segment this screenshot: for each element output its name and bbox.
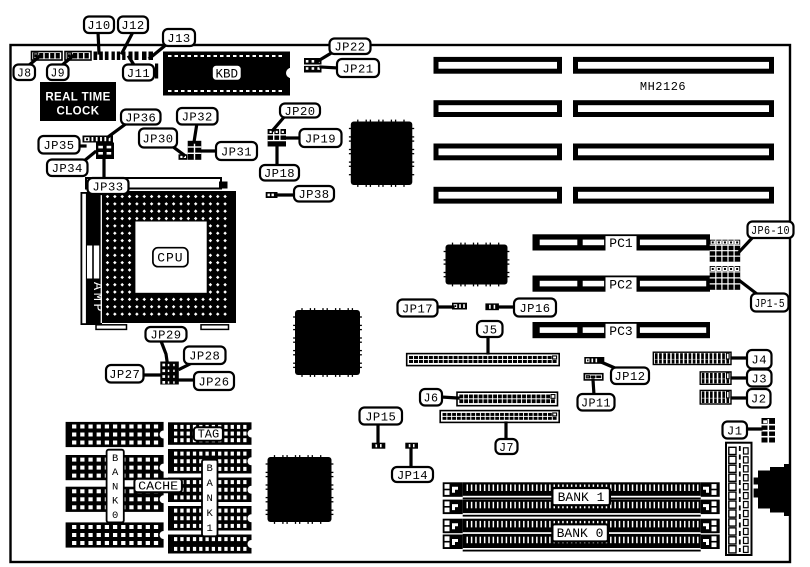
svg-text:0: 0 <box>112 510 118 522</box>
svg-text:CACHE: CACHE <box>138 479 178 493</box>
svg-text:J6: J6 <box>424 392 439 406</box>
svg-text:JP16: JP16 <box>519 302 550 316</box>
svg-text:JP12: JP12 <box>614 370 645 384</box>
svg-text:1: 1 <box>207 523 213 535</box>
svg-text:N: N <box>112 481 118 493</box>
svg-text:PC2: PC2 <box>609 277 632 292</box>
svg-text:BANK 0: BANK 0 <box>557 526 604 541</box>
svg-text:J8: J8 <box>17 67 32 81</box>
svg-text:JP22: JP22 <box>334 41 365 55</box>
svg-text:J3: J3 <box>751 372 767 386</box>
svg-text:J1: J1 <box>727 424 743 438</box>
svg-text:JP27: JP27 <box>109 368 140 382</box>
svg-text:JP20: JP20 <box>284 105 315 119</box>
svg-text:BANK 1: BANK 1 <box>558 490 605 505</box>
svg-text:MH2126: MH2126 <box>640 80 686 94</box>
svg-text:K: K <box>112 496 119 508</box>
svg-text:J11: J11 <box>127 67 150 81</box>
svg-text:JP6-10: JP6-10 <box>751 224 790 238</box>
svg-text:JP38: JP38 <box>298 188 329 202</box>
svg-text:REAL TIME: REAL TIME <box>45 92 110 104</box>
svg-text:J7: J7 <box>499 441 514 455</box>
svg-text:JP36: JP36 <box>125 111 156 125</box>
svg-text:N: N <box>207 493 213 505</box>
svg-text:B: B <box>112 453 118 465</box>
svg-text:JP33: JP33 <box>92 180 123 194</box>
svg-text:J2: J2 <box>751 393 767 407</box>
svg-text:JP1-5: JP1-5 <box>755 297 786 311</box>
svg-text:JP17: JP17 <box>402 302 433 316</box>
svg-text:JP34: JP34 <box>52 162 83 176</box>
svg-text:JP35: JP35 <box>43 139 74 153</box>
svg-text:JP32: JP32 <box>182 111 213 125</box>
svg-text:J5: J5 <box>482 323 498 337</box>
svg-text:A: A <box>112 467 119 479</box>
svg-text:JP11: JP11 <box>581 397 611 411</box>
svg-text:JP21: JP21 <box>342 62 373 76</box>
svg-text:J12: J12 <box>121 19 144 33</box>
svg-text:PC1: PC1 <box>609 236 633 251</box>
svg-text:CPU: CPU <box>157 251 183 266</box>
svg-text:TAG: TAG <box>198 428 220 442</box>
svg-text:PC3: PC3 <box>609 324 632 339</box>
svg-text:JP14: JP14 <box>397 469 428 483</box>
svg-text:JP19: JP19 <box>305 132 336 146</box>
svg-text:B: B <box>207 463 213 475</box>
svg-text:J9: J9 <box>51 67 66 81</box>
svg-text:J4: J4 <box>751 354 767 368</box>
svg-text:JP30: JP30 <box>142 132 173 146</box>
svg-text:JP31: JP31 <box>221 145 252 159</box>
svg-text:JP28: JP28 <box>189 350 220 364</box>
svg-text:J13: J13 <box>167 32 190 46</box>
svg-text:CLOCK: CLOCK <box>57 106 100 118</box>
svg-text:JP18: JP18 <box>264 167 295 181</box>
svg-text:KBD: KBD <box>215 67 238 81</box>
svg-text:JP15: JP15 <box>365 410 396 424</box>
svg-text:JP29: JP29 <box>150 329 181 343</box>
svg-text:A: A <box>207 478 214 490</box>
svg-text:K: K <box>207 508 214 520</box>
svg-text:JP26: JP26 <box>198 375 229 389</box>
svg-text:J10: J10 <box>87 19 110 33</box>
